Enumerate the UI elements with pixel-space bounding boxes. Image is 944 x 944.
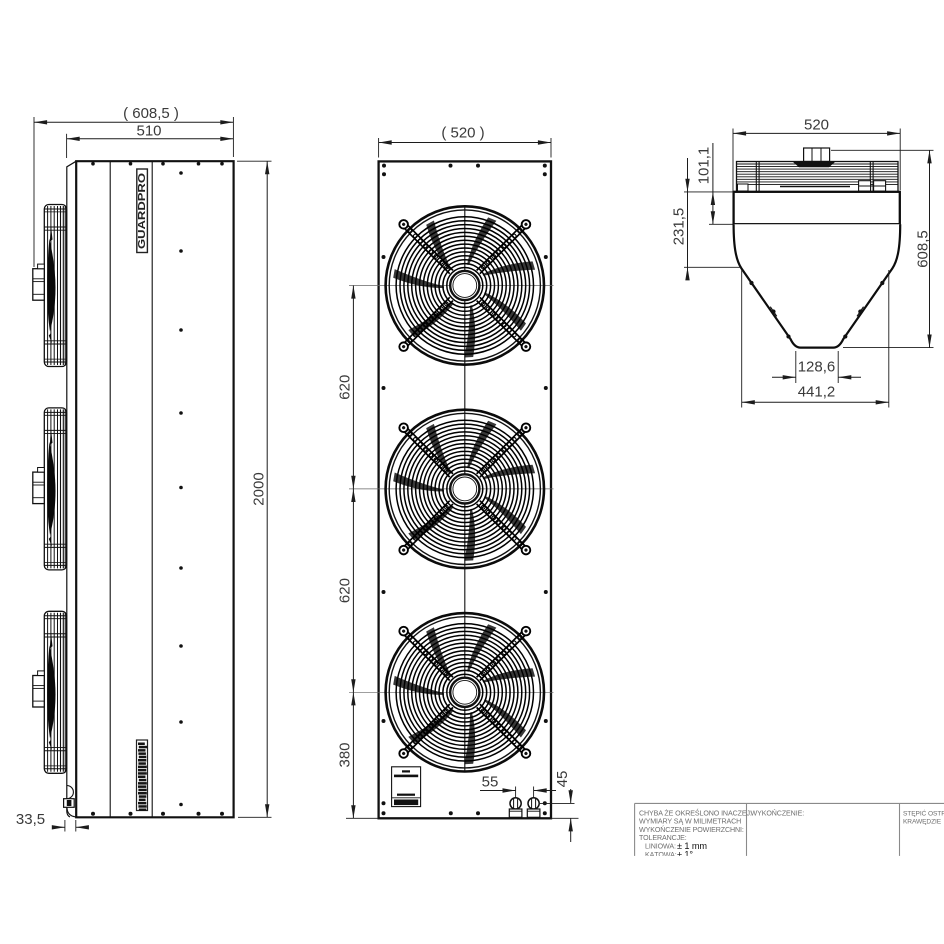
svg-text:620: 620 <box>336 375 353 400</box>
svg-text:33,5: 33,5 <box>16 811 45 828</box>
svg-text:380: 380 <box>336 742 353 767</box>
svg-text:441,2: 441,2 <box>798 384 836 401</box>
svg-text:101,1: 101,1 <box>695 147 712 185</box>
svg-text:128,6: 128,6 <box>798 359 836 376</box>
svg-text:608,5: 608,5 <box>914 230 931 268</box>
svg-text:( 608,5 ): ( 608,5 ) <box>123 105 179 122</box>
svg-text:520: 520 <box>804 117 829 134</box>
svg-text:WYKOŃCZENIE:: WYKOŃCZENIE: <box>751 808 805 817</box>
svg-text:620: 620 <box>336 578 353 603</box>
svg-text:( 520 ): ( 520 ) <box>441 125 484 142</box>
svg-text:CHYBA ŻE OKREŚLONO INACZEJ:: CHYBA ŻE OKREŚLONO INACZEJ: <box>639 808 752 817</box>
svg-text:WYMIARY SĄ W MILIMETRACH: WYMIARY SĄ W MILIMETRACH <box>639 818 741 826</box>
svg-text:GUARDPRO: GUARDPRO <box>137 173 148 249</box>
svg-text:STĘPIĆ OSTRE: STĘPIĆ OSTRE <box>903 808 944 817</box>
svg-text:55: 55 <box>482 774 499 791</box>
svg-text:510: 510 <box>136 122 161 139</box>
svg-text:LINIOWA:: LINIOWA: <box>645 842 676 850</box>
svg-text:45: 45 <box>554 771 571 788</box>
svg-text:2000: 2000 <box>250 472 267 505</box>
svg-text:KRAWĘDZIE: KRAWĘDZIE <box>903 819 942 826</box>
svg-text:231,5: 231,5 <box>670 208 687 246</box>
svg-text:WYKOŃCZENIE POWIERZCHNI:: WYKOŃCZENIE POWIERZCHNI: <box>639 825 744 834</box>
